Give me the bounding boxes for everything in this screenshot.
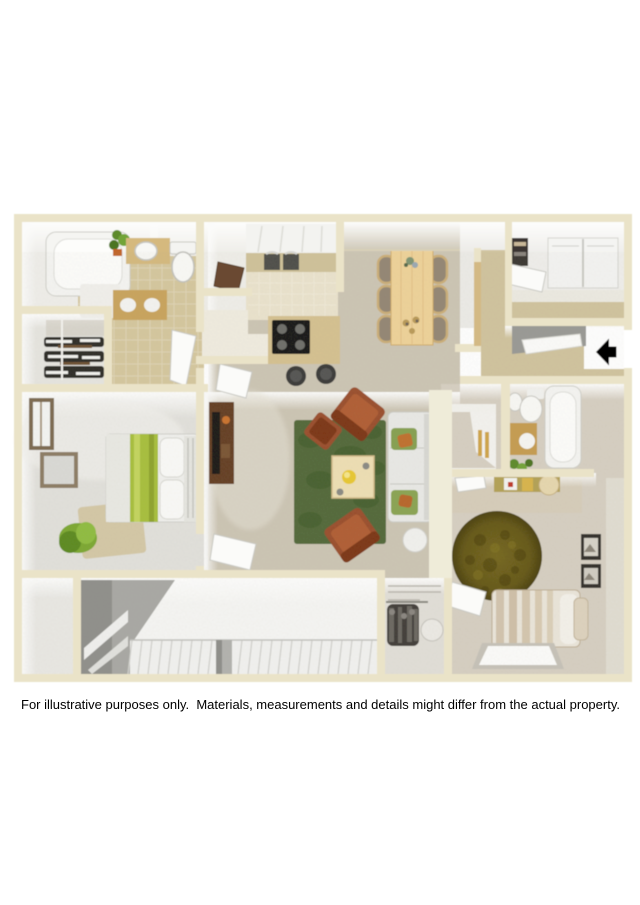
svg-text:For illustrative purposes only: For illustrative purposes only. Material…: [21, 697, 620, 712]
